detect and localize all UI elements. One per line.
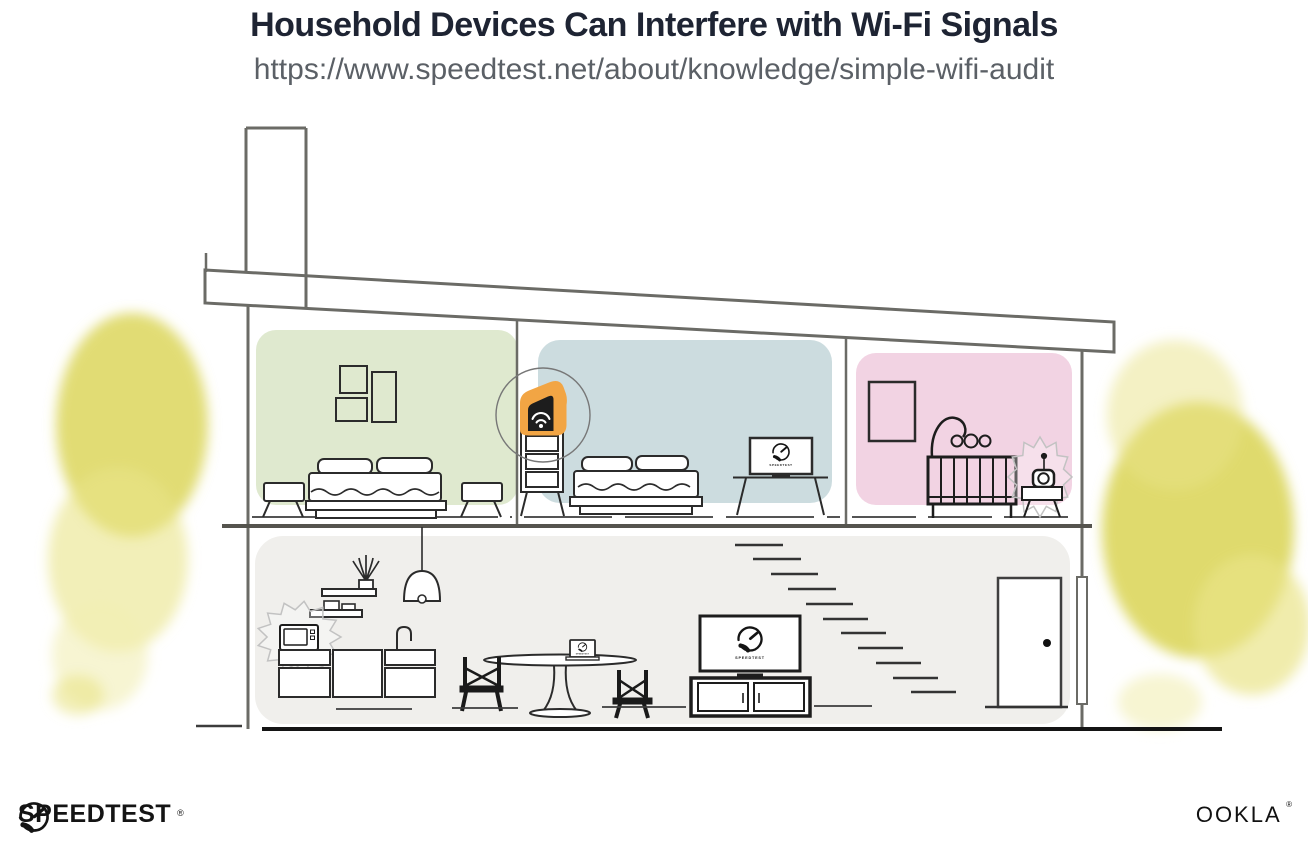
nightstand-right bbox=[461, 483, 502, 517]
infographic-page: Household Devices Can Interfere with Wi-… bbox=[0, 0, 1308, 861]
microwave-icon bbox=[280, 625, 318, 650]
speedtest-trademark: ® bbox=[177, 808, 184, 818]
entry-door bbox=[985, 578, 1068, 707]
nightstand-left bbox=[263, 483, 304, 517]
laptop-icon: SPEEDTEST bbox=[566, 640, 599, 660]
chimney bbox=[246, 128, 306, 273]
door-knob bbox=[1043, 639, 1051, 647]
ookla-logo: OOKLA ® bbox=[1196, 802, 1292, 828]
router-dresser bbox=[521, 430, 564, 516]
laptop-screen-label: SPEEDTEST bbox=[576, 654, 590, 656]
ookla-trademark: ® bbox=[1286, 800, 1292, 809]
ookla-logo-text: OOKLA bbox=[1196, 802, 1282, 827]
monitor-screen-label: SPEEDTEST bbox=[769, 463, 792, 467]
speedtest-logo: SPEEDTEST ® bbox=[18, 800, 184, 829]
tv-screen bbox=[700, 616, 800, 671]
foliage-left bbox=[48, 313, 208, 715]
tv-console bbox=[691, 678, 810, 716]
speedtest-gauge-logo-icon bbox=[18, 800, 52, 834]
downspout bbox=[1077, 577, 1087, 704]
house-cross-section-illustration: SPEEDTEST bbox=[0, 0, 1308, 861]
foliage-right bbox=[1102, 340, 1308, 730]
tv-screen-label: SPEEDTEST bbox=[735, 656, 765, 660]
bed-blue-room bbox=[570, 456, 702, 514]
living-room-tv: SPEEDTEST bbox=[700, 616, 800, 677]
bed-green-room bbox=[306, 458, 446, 518]
